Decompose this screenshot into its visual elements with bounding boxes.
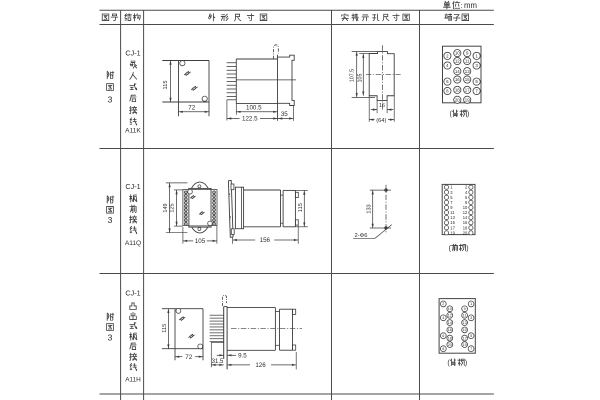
svg-text:5: 5 — [470, 334, 472, 338]
svg-text:122.5: 122.5 — [242, 116, 258, 123]
svg-text:105: 105 — [195, 238, 206, 245]
svg-text:14: 14 — [448, 321, 452, 325]
svg-text:105: 105 — [358, 74, 364, 83]
svg-text:12: 12 — [448, 314, 452, 318]
svg-text:(64): (64) — [376, 118, 386, 124]
svg-text:3: 3 — [108, 333, 113, 343]
svg-text:13: 13 — [463, 321, 467, 325]
svg-text:115: 115 — [163, 80, 169, 89]
svg-text:7: 7 — [470, 347, 472, 351]
svg-text:A11K: A11K — [125, 128, 141, 135]
svg-text:CJ-1: CJ-1 — [125, 49, 140, 58]
svg-text:19: 19 — [463, 343, 467, 347]
svg-text:19: 19 — [450, 230, 455, 235]
svg-text:3: 3 — [108, 215, 113, 225]
svg-text:16: 16 — [448, 328, 452, 332]
svg-text:9: 9 — [464, 307, 466, 311]
svg-text:): ) — [466, 245, 468, 252]
svg-text:14: 14 — [455, 69, 460, 74]
svg-text:126: 126 — [255, 362, 266, 369]
svg-text:A11H: A11H — [125, 377, 141, 384]
svg-text:17: 17 — [465, 88, 470, 93]
svg-text:3: 3 — [108, 95, 113, 105]
svg-text:16: 16 — [455, 77, 460, 82]
svg-text:10: 10 — [455, 51, 460, 56]
svg-text:): ) — [467, 111, 469, 118]
svg-text:4: 4 — [442, 316, 444, 320]
svg-text:156: 156 — [260, 237, 271, 244]
svg-text:15: 15 — [463, 328, 467, 332]
svg-text:72: 72 — [185, 354, 192, 361]
svg-text:18: 18 — [455, 88, 460, 93]
svg-text:2: 2 — [442, 302, 444, 306]
svg-text:17: 17 — [463, 336, 467, 340]
svg-text:A11Q: A11Q — [125, 240, 141, 247]
svg-text:CJ-1: CJ-1 — [125, 289, 140, 298]
svg-text:12: 12 — [455, 59, 460, 64]
svg-text:115: 115 — [162, 324, 168, 333]
svg-text:): ) — [465, 360, 467, 367]
svg-text:11: 11 — [463, 314, 467, 318]
svg-text:19: 19 — [465, 97, 470, 102]
svg-text:149: 149 — [163, 203, 169, 212]
svg-text:31.5: 31.5 — [212, 359, 224, 365]
svg-text:6: 6 — [442, 334, 444, 338]
svg-text:133: 133 — [366, 204, 372, 213]
svg-text:CJ-1: CJ-1 — [125, 182, 140, 191]
svg-text:72: 72 — [188, 104, 195, 111]
svg-text:20: 20 — [448, 343, 452, 347]
svg-text:1: 1 — [470, 302, 472, 306]
svg-text:20: 20 — [463, 230, 468, 235]
svg-text:15: 15 — [465, 77, 470, 82]
svg-text:107.5: 107.5 — [350, 69, 356, 82]
svg-text:16: 16 — [379, 103, 385, 109]
svg-text:20: 20 — [455, 97, 460, 102]
svg-text:13: 13 — [465, 69, 470, 74]
svg-text:3: 3 — [470, 316, 472, 320]
svg-text:11: 11 — [465, 59, 470, 64]
svg-text:8: 8 — [442, 347, 444, 351]
svg-text:35: 35 — [281, 111, 288, 118]
svg-text:115: 115 — [298, 203, 304, 212]
svg-text:mm: mm — [464, 1, 477, 10]
svg-text:100.5: 100.5 — [246, 105, 262, 112]
svg-text::: : — [461, 1, 463, 10]
svg-text:125: 125 — [170, 203, 176, 212]
svg-text:9.5: 9.5 — [238, 353, 247, 360]
svg-text:18: 18 — [448, 336, 452, 340]
svg-text:10: 10 — [448, 307, 452, 311]
